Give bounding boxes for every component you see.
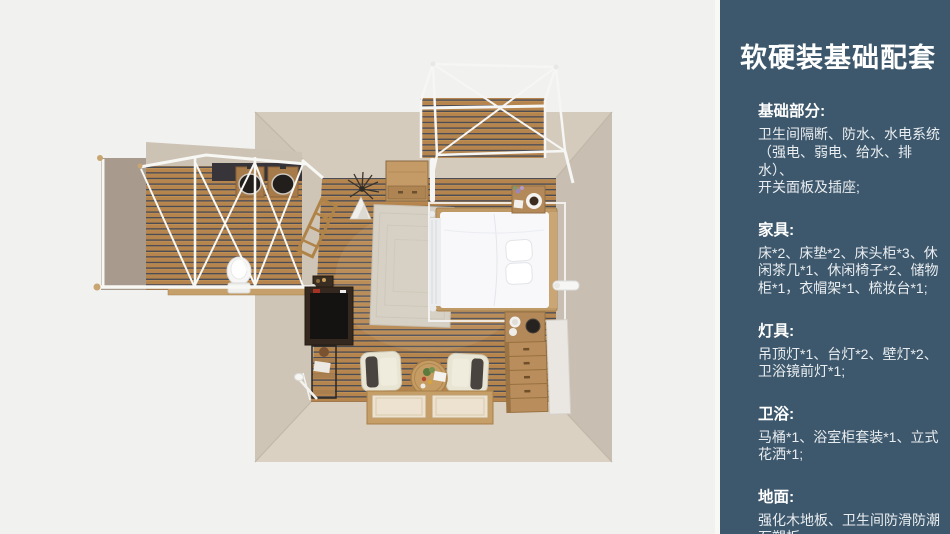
coffee-cup (530, 197, 539, 206)
desk-paper (340, 290, 346, 293)
table-plant (429, 367, 435, 373)
section-heading: 家具: (758, 218, 940, 240)
lounge-chair-left (360, 351, 402, 392)
bathroom-wing (94, 142, 337, 298)
drawer-knob (524, 390, 530, 393)
flowers (520, 186, 524, 190)
sink-basin-right (272, 174, 294, 194)
lounge-chair-right (446, 353, 489, 394)
nightstand-top (512, 186, 545, 213)
sink-basin-left (239, 174, 261, 194)
plate (509, 328, 517, 336)
tatami-mats (367, 391, 493, 424)
desk (305, 287, 353, 345)
info-panel: 软硬装基础配套 基础部分: 卫生间隔断、防水、水电系统 （强电、弱电、给水、排水… (720, 0, 950, 534)
duvet (440, 212, 549, 308)
wall-lamp (553, 281, 579, 290)
plate (512, 319, 518, 325)
door-panel (546, 320, 570, 415)
spec-sections: 基础部分: 卫生间隔断、防水、水电系统 （强电、弱电、给水、排水）、 开关面板及… (720, 99, 950, 534)
section-body: 马桶*1、浴室柜套装*1、立式 花洒*1; (758, 429, 940, 464)
chair-seat (379, 357, 397, 386)
panel-title: 软硬装基础配套 (740, 44, 940, 72)
pergola-joint (431, 62, 436, 67)
book (514, 200, 524, 209)
section-heading: 基础部分: (758, 99, 940, 121)
section-body: 吊顶灯*1、台灯*2、壁灯*2、 卫浴镜前灯*1; (758, 346, 940, 381)
section-heading: 灯具: (758, 319, 940, 341)
bathroom-wall-left (101, 158, 146, 290)
drawer-knob (523, 348, 529, 351)
dark-cup (526, 319, 540, 333)
frame-knob (94, 284, 101, 291)
flowers (513, 186, 517, 190)
section-basics: 基础部分: 卫生间隔断、防水、水电系统 （强电、弱电、给水、排水）、 开关面板及… (758, 99, 940, 196)
storage-cabinet (386, 161, 428, 201)
chair-cushion (365, 356, 379, 388)
frame-knob (138, 164, 143, 169)
headboard (549, 212, 557, 308)
pillow (505, 239, 532, 262)
section-body: 床*2、床垫*2、床头柜*3、休 闲茶几*1、休闲椅子*2、储物 柜*1，衣帽架… (758, 245, 940, 298)
bed-fringe (429, 211, 441, 312)
chair-seat (451, 358, 469, 387)
pergola-post (430, 158, 435, 202)
fruit (428, 380, 432, 384)
bottle (322, 278, 326, 282)
pergola-joint (554, 65, 559, 70)
dresser (505, 341, 548, 412)
frame-knob (97, 155, 103, 161)
floorplan-render (0, 0, 720, 534)
fruit (422, 377, 426, 381)
section-body: 强化木地板、卫生间防滑防潮 石塑板; (758, 512, 940, 534)
small-cup (421, 384, 426, 389)
section-body: 卫生间隔断、防水、水电系统 （强电、弱电、给水、排水）、 开关面板及插座; (758, 126, 940, 196)
section-bathroom: 卫浴: 马桶*1、浴室柜套装*1、立式 花洒*1; (758, 402, 940, 464)
drawer-knob (524, 362, 530, 365)
desk-accent (313, 289, 320, 293)
slide: 软硬装基础配套 基础部分: 卫生间隔断、防水、水电系统 （强电、弱电、给水、排水… (0, 0, 950, 534)
chair-cushion (470, 358, 484, 390)
section-lighting: 灯具: 吊顶灯*1、台灯*2、壁灯*2、 卫浴镜前灯*1; (758, 319, 940, 381)
bottle (316, 279, 320, 283)
section-furniture: 家具: 床*2、床垫*2、床头柜*3、休 闲茶几*1、休闲椅子*2、储物 柜*1… (758, 218, 940, 298)
section-heading: 卫浴: (758, 402, 940, 424)
hat (319, 347, 329, 357)
bed (429, 203, 565, 321)
section-heading: 地面: (758, 485, 940, 507)
pillow (505, 262, 532, 284)
section-flooring: 地面: 强化木地板、卫生间防滑防潮 石塑板; (758, 485, 940, 534)
faucet-right (280, 165, 286, 169)
drawer-knob (524, 376, 530, 379)
